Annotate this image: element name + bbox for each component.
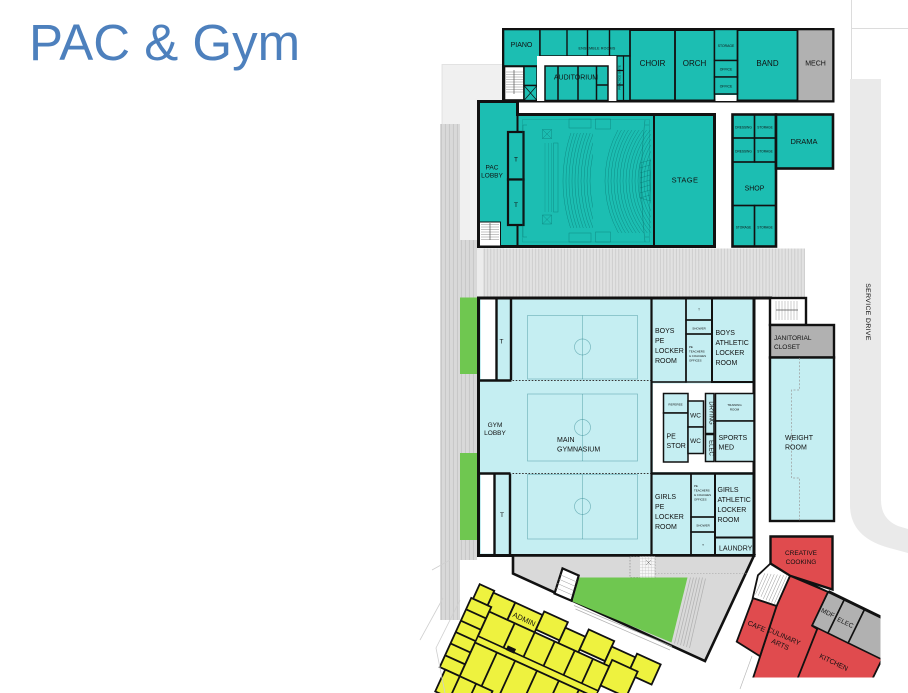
svg-text:MAIN: MAIN xyxy=(557,437,575,444)
svg-text:PE: PE xyxy=(655,338,665,345)
svg-text:& COACHES: & COACHES xyxy=(694,493,711,497)
svg-text:SHOP: SHOP xyxy=(745,186,765,193)
svg-text:LOCKER: LOCKER xyxy=(655,348,684,355)
svg-text:DRYING: DRYING xyxy=(708,401,714,425)
svg-text:SHOWER: SHOWER xyxy=(696,524,710,528)
svg-text:STORAGE: STORAGE xyxy=(757,150,773,154)
svg-text:ATHLETIC: ATHLETIC xyxy=(718,497,751,504)
svg-text:GIRLS: GIRLS xyxy=(655,494,676,501)
svg-text:DRESSING: DRESSING xyxy=(735,126,752,130)
svg-text:T: T xyxy=(702,543,704,547)
svg-text:LOCKER: LOCKER xyxy=(718,507,747,514)
svg-text:CLOSET: CLOSET xyxy=(774,344,800,351)
svg-text:PAC: PAC xyxy=(486,165,499,172)
svg-text:OFFICE: OFFICE xyxy=(720,85,733,89)
svg-text:STAGE: STAGE xyxy=(672,176,699,185)
svg-text:AUDITORIUM: AUDITORIUM xyxy=(554,75,598,82)
svg-text:T: T xyxy=(500,339,504,346)
svg-text:MED: MED xyxy=(719,445,735,452)
svg-text:BOYS: BOYS xyxy=(716,330,736,337)
svg-text:STOR: STOR xyxy=(667,443,686,450)
svg-text:T: T xyxy=(500,512,504,519)
svg-text:PE: PE xyxy=(694,484,698,488)
svg-text:WC: WC xyxy=(690,438,701,445)
svg-text:LAUNDRY: LAUNDRY xyxy=(719,546,753,553)
svg-text:LOCKER: LOCKER xyxy=(655,514,684,521)
svg-text:ORCH: ORCH xyxy=(683,59,707,68)
svg-text:T: T xyxy=(698,308,700,312)
svg-text:TEACHERS: TEACHERS xyxy=(689,350,705,354)
svg-text:CREATIVE: CREATIVE xyxy=(785,550,818,557)
svg-text:PIANO: PIANO xyxy=(511,42,533,49)
svg-text:ROOM: ROOM xyxy=(730,408,740,412)
svg-text:& COACHES: & COACHES xyxy=(689,354,706,358)
svg-text:OFFICES: OFFICES xyxy=(689,359,702,363)
svg-text:OFFICE: OFFICE xyxy=(720,68,733,72)
svg-text:ROOM: ROOM xyxy=(718,517,740,524)
svg-text:PE: PE xyxy=(689,345,693,349)
svg-text:COOKING: COOKING xyxy=(786,559,817,566)
svg-text:PE: PE xyxy=(667,434,677,441)
svg-text:ATHLETIC: ATHLETIC xyxy=(716,340,749,347)
svg-text:CHOIR: CHOIR xyxy=(640,59,666,68)
svg-text:STORAGE: STORAGE xyxy=(736,226,752,230)
svg-text:TRAINING: TRAINING xyxy=(727,403,742,407)
svg-text:SHOWER: SHOWER xyxy=(692,327,706,331)
svg-text:LOBBY: LOBBY xyxy=(481,173,503,180)
svg-text:GIRLS: GIRLS xyxy=(718,487,739,494)
svg-text:OFFICES: OFFICES xyxy=(694,498,707,502)
svg-text:ROOM: ROOM xyxy=(716,360,738,367)
svg-text:JANITORIAL: JANITORIAL xyxy=(774,335,812,342)
svg-text:REFEREE: REFEREE xyxy=(668,403,682,407)
svg-text:MECH: MECH xyxy=(805,61,826,68)
svg-text:TEACHERS: TEACHERS xyxy=(694,489,710,493)
svg-text:STORAGE: STORAGE xyxy=(757,126,773,130)
svg-text:ENSEMBLE ROOMS: ENSEMBLE ROOMS xyxy=(579,47,616,51)
svg-text:LOBBY: LOBBY xyxy=(484,430,506,437)
svg-text:GYM: GYM xyxy=(488,422,503,429)
svg-text:PRACTICE SUITE: PRACTICE SUITE xyxy=(618,65,622,90)
svg-text:LOCKER: LOCKER xyxy=(716,350,745,357)
svg-text:ROOM: ROOM xyxy=(655,524,677,531)
svg-text:DRESSING: DRESSING xyxy=(735,150,752,154)
svg-text:PAC & Gym: PAC & Gym xyxy=(29,14,300,71)
svg-text:WC: WC xyxy=(690,413,701,420)
svg-text:BAND: BAND xyxy=(756,59,778,68)
svg-text:GYMNASIUM: GYMNASIUM xyxy=(557,447,600,454)
svg-text:STORAGE: STORAGE xyxy=(757,226,773,230)
svg-text:SERVICE DRIVE: SERVICE DRIVE xyxy=(864,283,871,341)
svg-text:SPORTS: SPORTS xyxy=(719,435,748,442)
svg-text:BOYS: BOYS xyxy=(655,328,675,335)
svg-text:ELEC: ELEC xyxy=(708,440,714,456)
svg-text:WEIGHT: WEIGHT xyxy=(785,435,814,442)
svg-text:DRAMA: DRAMA xyxy=(790,137,817,146)
svg-text:STORAGE: STORAGE xyxy=(718,44,735,48)
svg-text:ROOM: ROOM xyxy=(785,445,807,452)
svg-text:ROOM: ROOM xyxy=(655,358,677,365)
svg-text:PE: PE xyxy=(655,504,665,511)
svg-text:T: T xyxy=(514,157,518,164)
svg-text:T: T xyxy=(514,202,518,209)
